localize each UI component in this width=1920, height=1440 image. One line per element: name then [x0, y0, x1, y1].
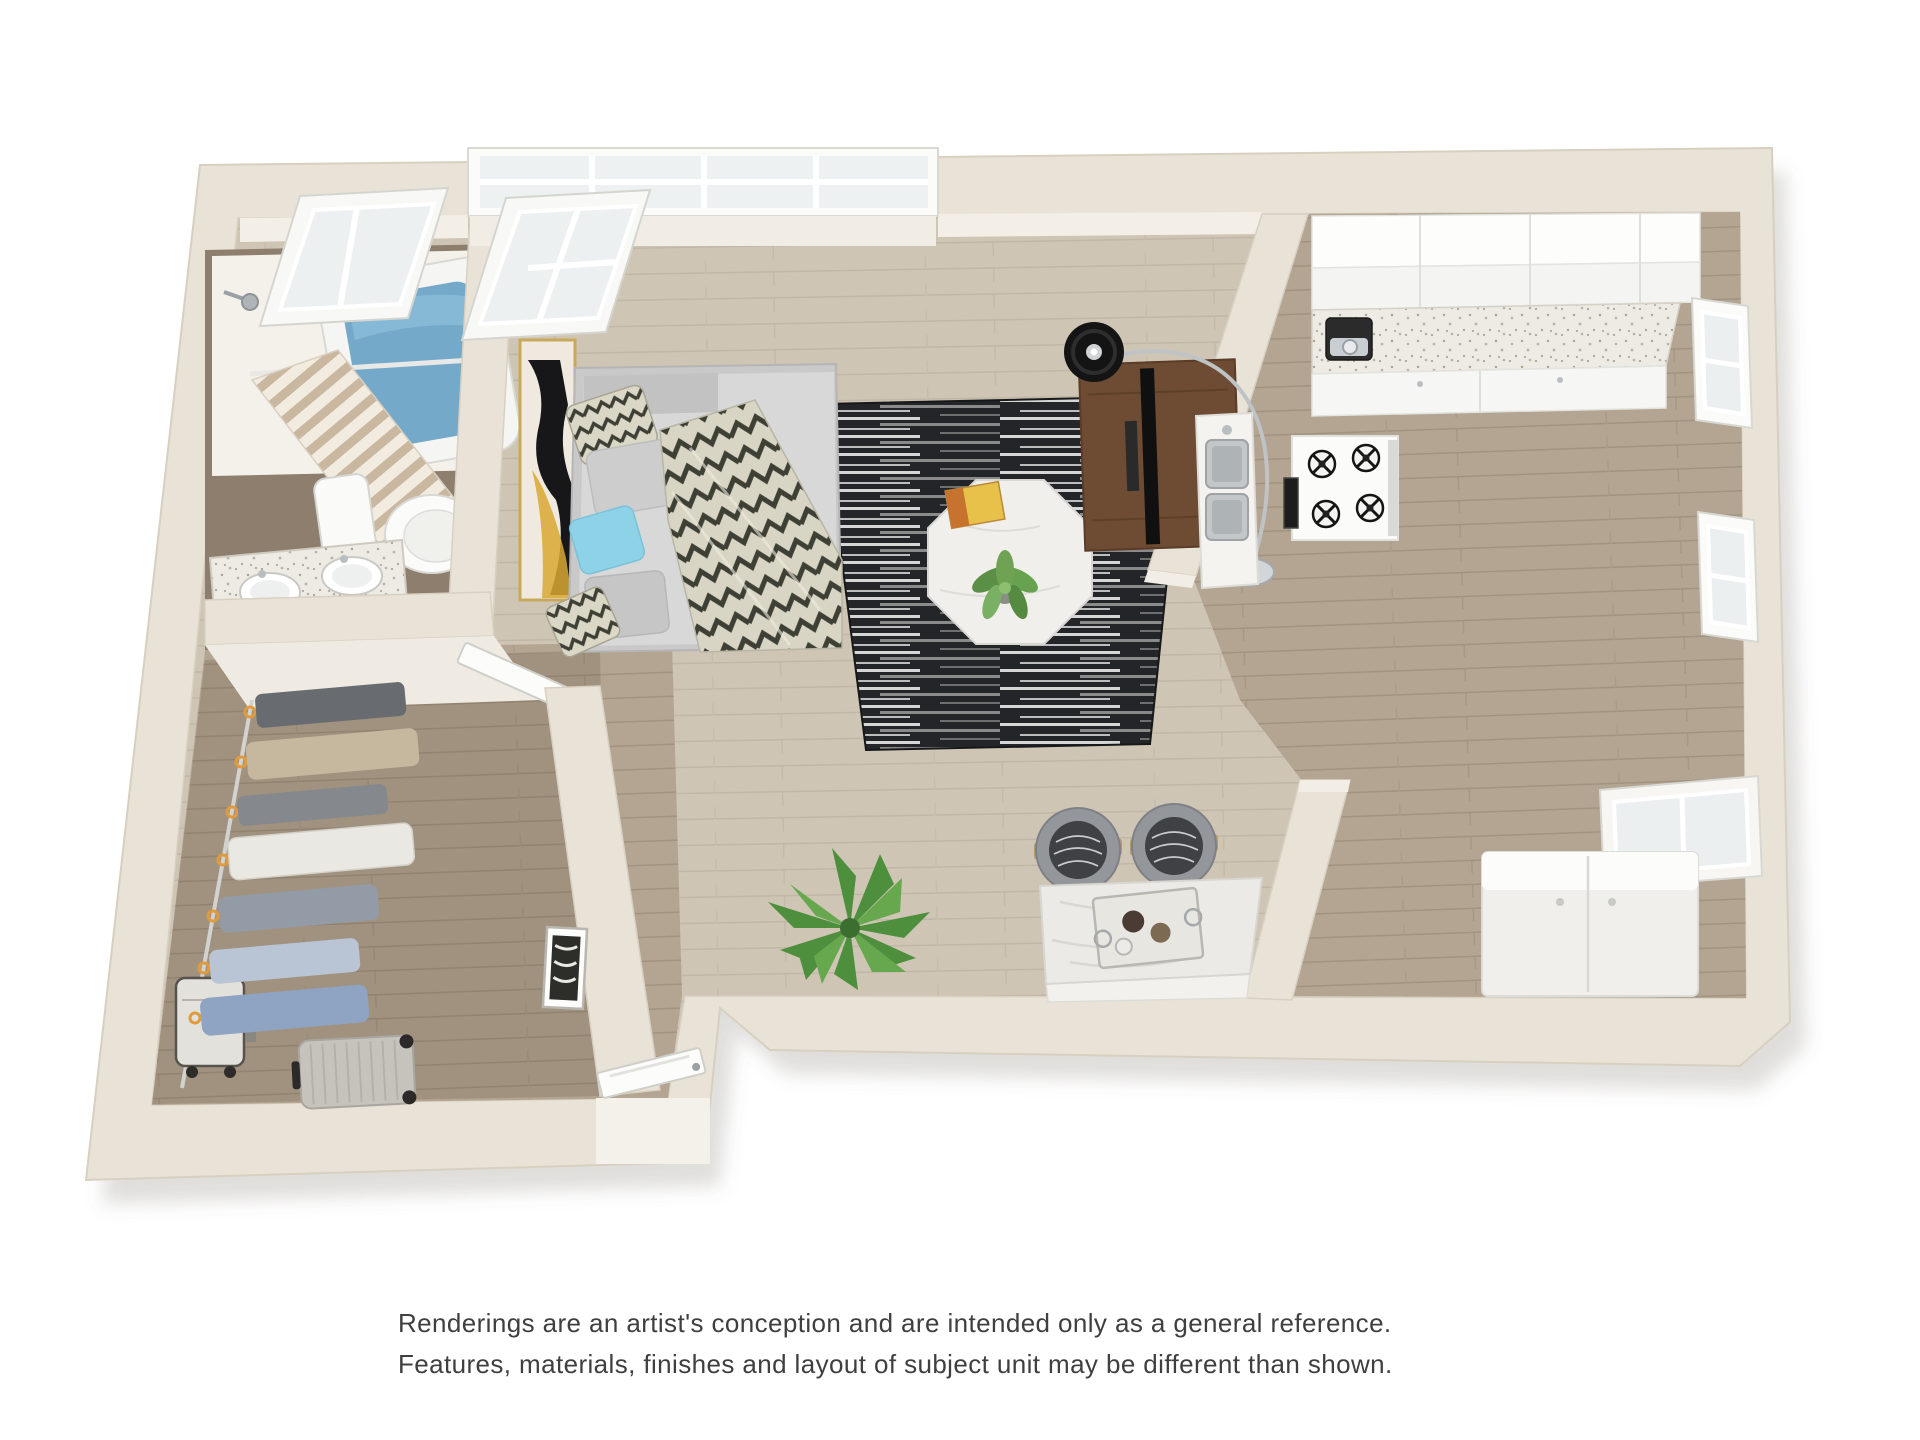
- kitchen-window: [1698, 512, 1758, 642]
- bar-stool: [1034, 808, 1122, 892]
- faucet-icon: [340, 555, 348, 563]
- faucet-icon: [1222, 425, 1232, 435]
- disclaimer-text: Renderings are an artist's conception an…: [398, 1303, 1393, 1385]
- kitchen-window: [1692, 298, 1752, 428]
- serving-tray: [1091, 888, 1206, 969]
- disclaimer-line-2: Features, materials, finishes and layout…: [398, 1344, 1393, 1385]
- coffee-maker: [1326, 318, 1372, 360]
- wall-end-cap: [1298, 780, 1350, 792]
- entry-threshold: [596, 1098, 710, 1164]
- burner-icon: [1313, 501, 1339, 527]
- burner-icon: [1309, 451, 1335, 477]
- suitcase: [290, 1034, 416, 1110]
- lower-cabinets: [1312, 366, 1666, 416]
- gas-stove: [1284, 436, 1398, 540]
- chevron-wall-art: [543, 927, 587, 1009]
- floor-plan-page: Renderings are an artist's conception an…: [0, 0, 1920, 1440]
- floor-plan-rendering: [0, 0, 1920, 1440]
- burner-icon: [1357, 495, 1383, 521]
- octagon-coffee-table: [928, 480, 1092, 644]
- kitchen-island: [1040, 878, 1262, 1002]
- wall-bathroom-south: [205, 592, 494, 645]
- burner-icon: [1353, 445, 1379, 471]
- faucet-icon: [258, 570, 266, 578]
- bed: [544, 364, 842, 659]
- bar-stool: [1130, 804, 1218, 888]
- tv-soundbar: [1125, 421, 1139, 491]
- oven-window: [1284, 478, 1298, 528]
- refrigerator: [1482, 852, 1698, 996]
- sink-counter: [1196, 413, 1258, 588]
- wall-face-top-right: [938, 212, 1262, 237]
- upper-cabinets: [1312, 213, 1700, 310]
- disclaimer-line-1: Renderings are an artist's conception an…: [398, 1303, 1393, 1344]
